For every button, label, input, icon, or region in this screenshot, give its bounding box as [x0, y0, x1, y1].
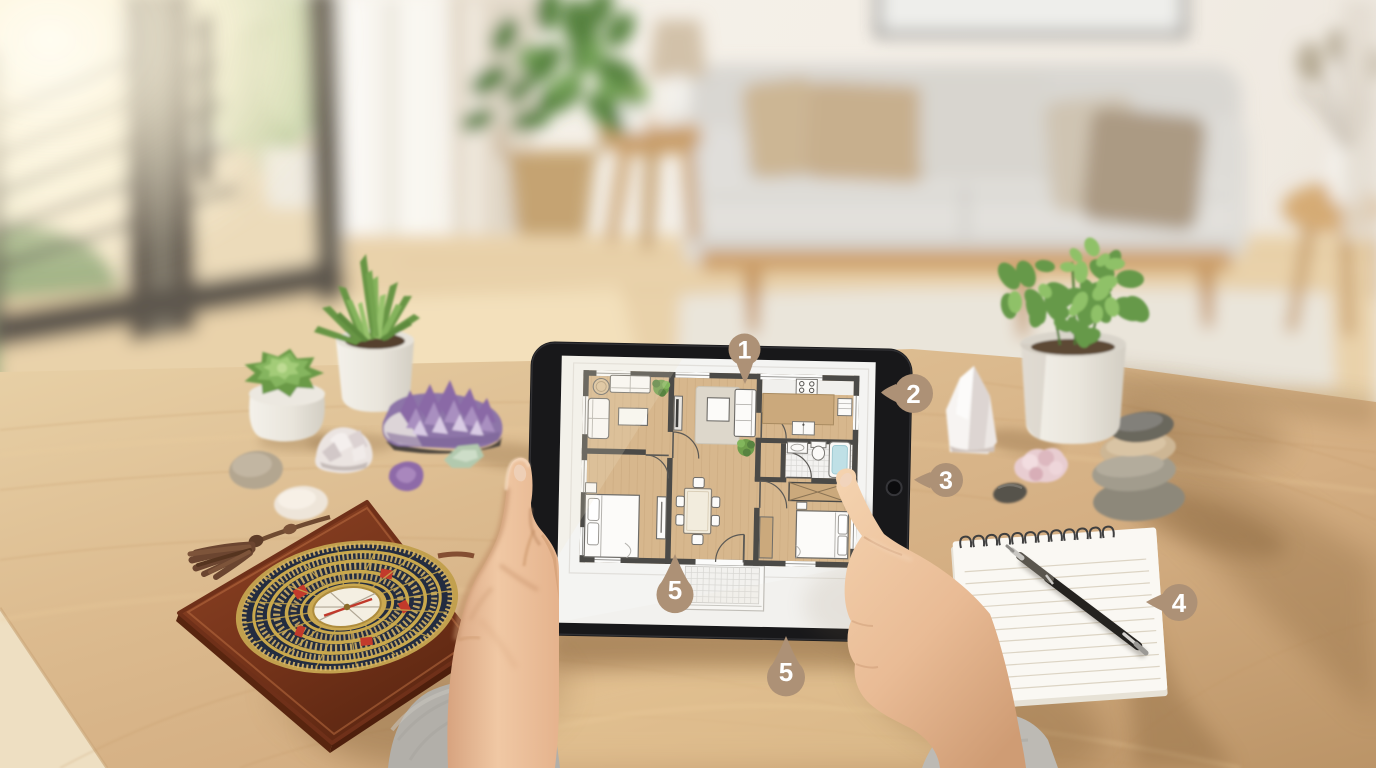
svg-text:2: 2: [906, 379, 920, 409]
svg-text:4: 4: [1172, 588, 1187, 618]
svg-text:5: 5: [668, 575, 682, 605]
svg-text:3: 3: [939, 467, 953, 495]
svg-text:1: 1: [738, 337, 752, 365]
svg-text:5: 5: [779, 657, 793, 687]
